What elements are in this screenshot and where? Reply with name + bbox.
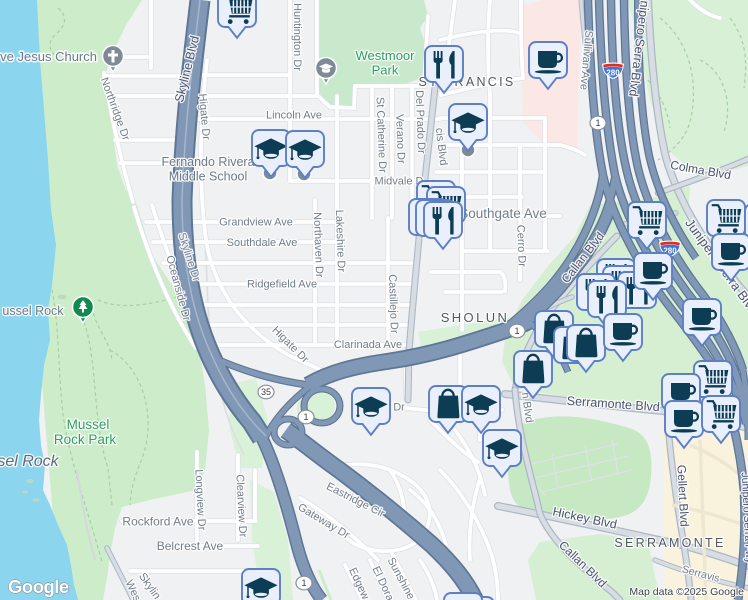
svg-text:SERRAMONTE: SERRAMONTE: [614, 536, 725, 550]
svg-text:Ridgefield Ave: Ridgefield Ave: [247, 279, 317, 291]
svg-text:Huntington Dr: Huntington Dr: [291, 3, 303, 71]
svg-text:1: 1: [595, 118, 600, 128]
svg-text:Park: Park: [372, 63, 399, 78]
svg-text:Google: Google: [8, 576, 69, 597]
svg-text:Southgate Ave: Southgate Ave: [459, 206, 547, 221]
svg-text:Map data ©2025 Google: Map data ©2025 Google: [629, 586, 744, 598]
svg-text:ve Jesus Church: ve Jesus Church: [0, 49, 97, 64]
svg-text:Midvale D: Midvale D: [375, 176, 424, 188]
svg-text:Dr: Dr: [393, 402, 405, 414]
svg-text:35: 35: [261, 387, 271, 397]
svg-text:Lakeshire Dr: Lakeshire Dr: [333, 210, 347, 273]
svg-text:ussel Rock: ussel Rock: [2, 304, 64, 318]
svg-text:Del Prado Dr: Del Prado Dr: [413, 90, 427, 154]
svg-text:Cerro Dr: Cerro Dr: [514, 225, 527, 268]
svg-text:SHOLUN: SHOLUN: [441, 310, 510, 325]
svg-text:1: 1: [303, 412, 308, 422]
svg-text:sel Rock: sel Rock: [0, 453, 60, 470]
svg-text:Southdale Ave: Southdale Ave: [227, 237, 298, 249]
svg-text:1: 1: [301, 578, 306, 588]
svg-text:Rock Park: Rock Park: [54, 432, 117, 447]
svg-text:Westmoor: Westmoor: [356, 48, 416, 63]
svg-text:Northaven Dr: Northaven Dr: [311, 212, 325, 278]
svg-text:Grandview Ave: Grandview Ave: [219, 217, 293, 229]
svg-text:Rockford Ave: Rockford Ave: [122, 515, 193, 529]
svg-text:Fernando Rivera: Fernando Rivera: [161, 155, 254, 169]
svg-text:Middle School: Middle School: [169, 170, 248, 184]
svg-text:Castillejo Dr: Castillejo Dr: [386, 274, 400, 334]
svg-text:Lincoln Ave: Lincoln Ave: [266, 110, 322, 122]
svg-text:280: 280: [606, 68, 620, 77]
svg-text:Mussel: Mussel: [67, 417, 110, 432]
svg-text:1: 1: [514, 326, 519, 336]
svg-text:Verano Dr: Verano Dr: [393, 114, 407, 164]
svg-text:Belcrest Ave: Belcrest Ave: [157, 539, 224, 553]
svg-text:Clarinada Ave: Clarinada Ave: [334, 339, 402, 351]
